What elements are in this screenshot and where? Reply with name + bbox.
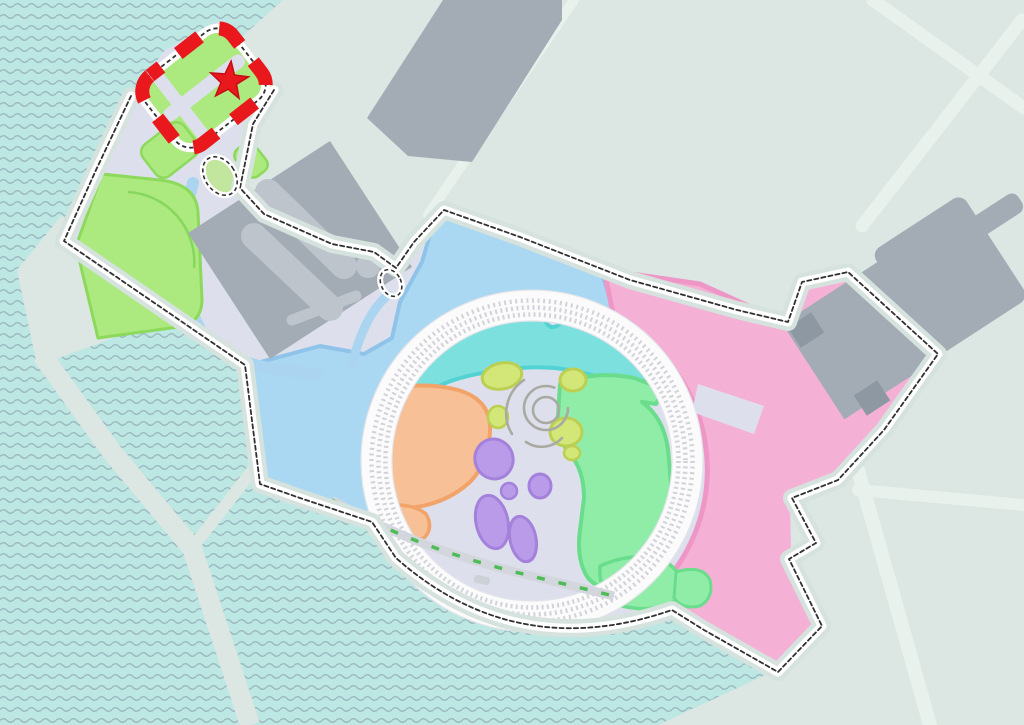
park-map-svg bbox=[0, 0, 1024, 725]
purple-zone-4[interactable] bbox=[529, 474, 551, 498]
map-canvas[interactable] bbox=[0, 0, 1024, 725]
olive-zone-2[interactable] bbox=[560, 369, 586, 391]
east-green-zone-dock[interactable] bbox=[674, 569, 711, 607]
purple-zone-5[interactable] bbox=[501, 483, 517, 499]
olive-zone-5[interactable] bbox=[564, 446, 580, 460]
olive-zone-4[interactable] bbox=[550, 418, 582, 446]
